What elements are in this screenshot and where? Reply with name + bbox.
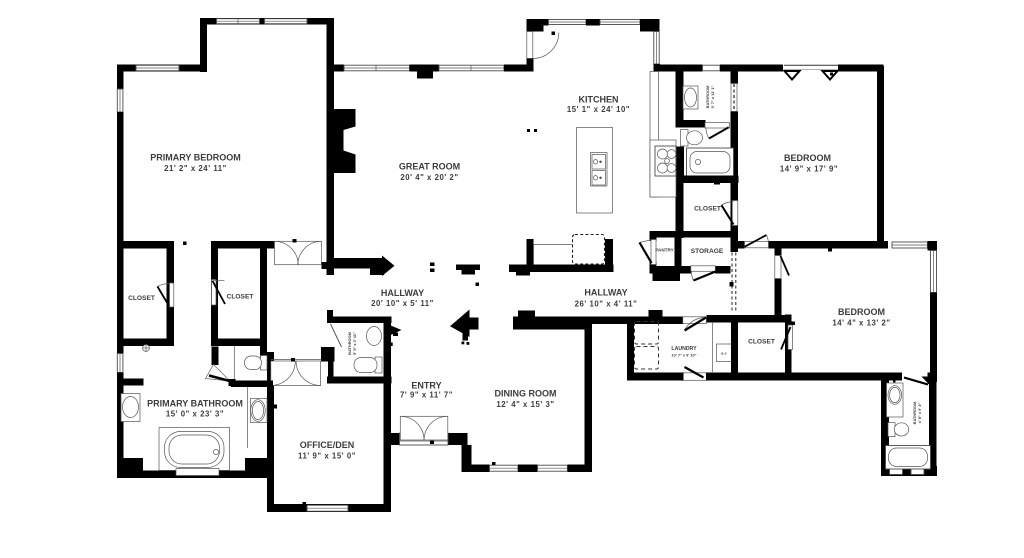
svg-text:20' 10" x 5' 11": 20' 10" x 5' 11": [371, 299, 434, 308]
svg-text:a c: a c: [721, 351, 727, 356]
svg-text:BEDROOM: BEDROOM: [838, 307, 885, 317]
svg-text:5' 7" x 11' 1": 5' 7" x 11' 1": [710, 86, 715, 109]
svg-text:4' 8" x 9' 2": 4' 8" x 9' 2": [917, 403, 922, 424]
svg-text:GREAT ROOM: GREAT ROOM: [399, 162, 460, 172]
svg-text:7' 9" x 11' 7": 7' 9" x 11' 7": [400, 391, 453, 400]
svg-text:14' 9" x 17' 9": 14' 9" x 17' 9": [780, 164, 838, 173]
svg-text:21' 2" x 24' 11": 21' 2" x 24' 11": [164, 164, 227, 173]
svg-text:ENTRY: ENTRY: [411, 380, 441, 390]
svg-text:PRIMARY BEDROOM: PRIMARY BEDROOM: [150, 153, 241, 163]
svg-text:STORAGE: STORAGE: [691, 248, 724, 255]
svg-text:HALLWAY: HALLWAY: [381, 288, 424, 298]
svg-text:BEDROOM: BEDROOM: [784, 153, 831, 163]
svg-text:CLOSET: CLOSET: [128, 295, 155, 302]
svg-text:KITCHEN: KITCHEN: [579, 95, 619, 105]
svg-text:OFFICE/DEN: OFFICE/DEN: [300, 440, 355, 450]
svg-text:CLOSET: CLOSET: [694, 206, 721, 213]
svg-text:LAUNDRY: LAUNDRY: [671, 346, 697, 352]
svg-text:CLOSET: CLOSET: [227, 294, 254, 301]
svg-text:PANTRY: PANTRY: [655, 248, 673, 253]
svg-text:11' 9" x 15' 0": 11' 9" x 15' 0": [298, 452, 356, 461]
svg-text:DINING ROOM: DINING ROOM: [495, 389, 557, 399]
svg-text:26' 10" x 4' 11": 26' 10" x 4' 11": [575, 300, 638, 309]
svg-text:10' 7" x 9' 10": 10' 7" x 9' 10": [671, 353, 696, 358]
svg-text:15' 1" x 24' 10": 15' 1" x 24' 10": [567, 105, 630, 114]
svg-text:12' 4" x 15' 3": 12' 4" x 15' 3": [496, 400, 554, 409]
svg-text:HALLWAY: HALLWAY: [584, 288, 627, 298]
svg-text:14' 4" x 13' 2": 14' 4" x 13' 2": [832, 318, 890, 327]
svg-text:CLOSET: CLOSET: [748, 339, 775, 346]
svg-text:20' 4" x 20' 2": 20' 4" x 20' 2": [400, 173, 458, 182]
svg-text:15' 0" x 23' 3": 15' 0" x 23' 3": [166, 410, 224, 419]
svg-text:5' 5" x 3' 11": 5' 5" x 3' 11": [352, 332, 357, 355]
svg-text:PRIMARY BATHROOM: PRIMARY BATHROOM: [147, 399, 243, 409]
